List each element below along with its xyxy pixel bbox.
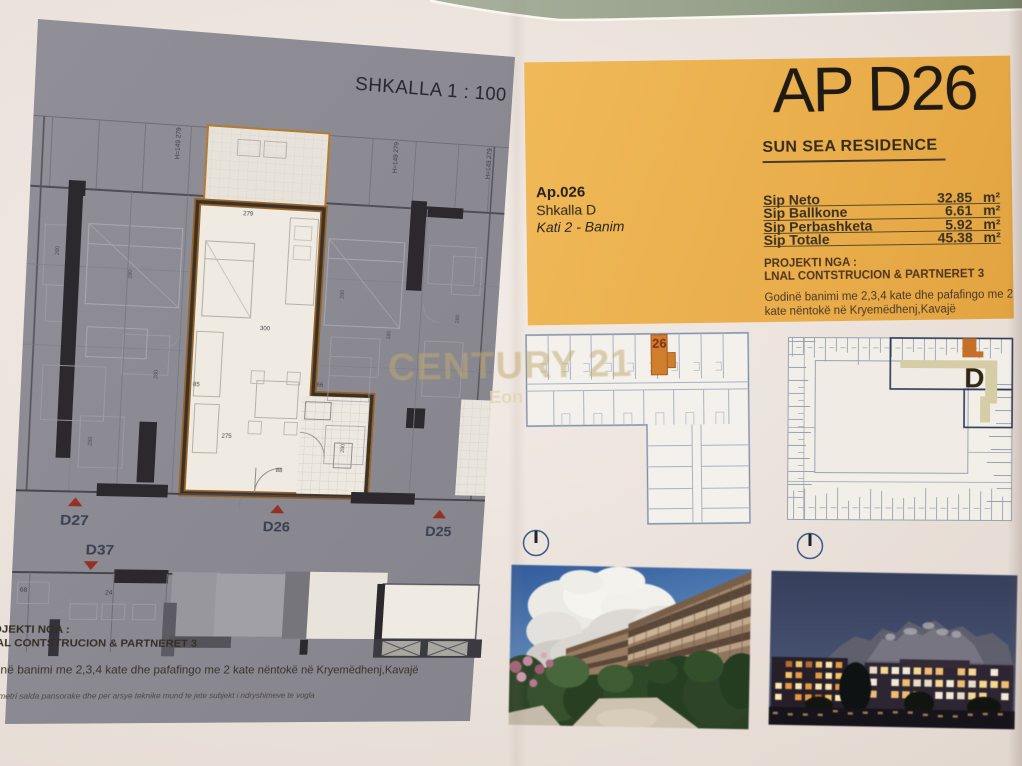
svg-text:D26: D26 [262,519,290,535]
svg-text:68: 68 [20,587,28,594]
svg-text:300: 300 [260,325,271,332]
svg-text:D37: D37 [85,542,114,558]
svg-text:279: 279 [243,211,254,218]
svg-text:88: 88 [276,467,283,474]
svg-text:280: 280 [153,370,159,379]
svg-text:280: 280 [340,290,346,299]
svg-text:D25: D25 [425,524,452,539]
svg-text:275: 275 [221,433,232,440]
svg-text:D27: D27 [60,513,90,529]
svg-text:280: 280 [88,437,94,446]
svg-text:280: 280 [340,444,346,453]
svg-text:D: D [964,362,984,393]
svg-text:66: 66 [316,382,323,389]
svg-text:LNAL CONTSTRUCION & PARTNERET: LNAL CONTSTRUCION & PARTNERET 3 [0,637,198,650]
svg-text:24: 24 [105,590,113,596]
svg-text:PROJEKTI NGA :: PROJEKTI NGA : [0,623,70,635]
svg-text:280: 280 [55,246,61,256]
svg-text:26: 26 [652,336,667,351]
svg-text:Godinë banimi me 2,3,4 kate dh: Godinë banimi me 2,3,4 kate dhe pafafing… [0,663,419,676]
svg-text:280: 280 [455,314,461,323]
svg-text:280: 280 [128,270,134,279]
svg-text:85: 85 [193,381,201,388]
svg-text:panormetri salda pansorake dhe: panormetri salda pansorake dhe per arsye… [0,691,315,701]
svg-text:280: 280 [386,331,392,340]
